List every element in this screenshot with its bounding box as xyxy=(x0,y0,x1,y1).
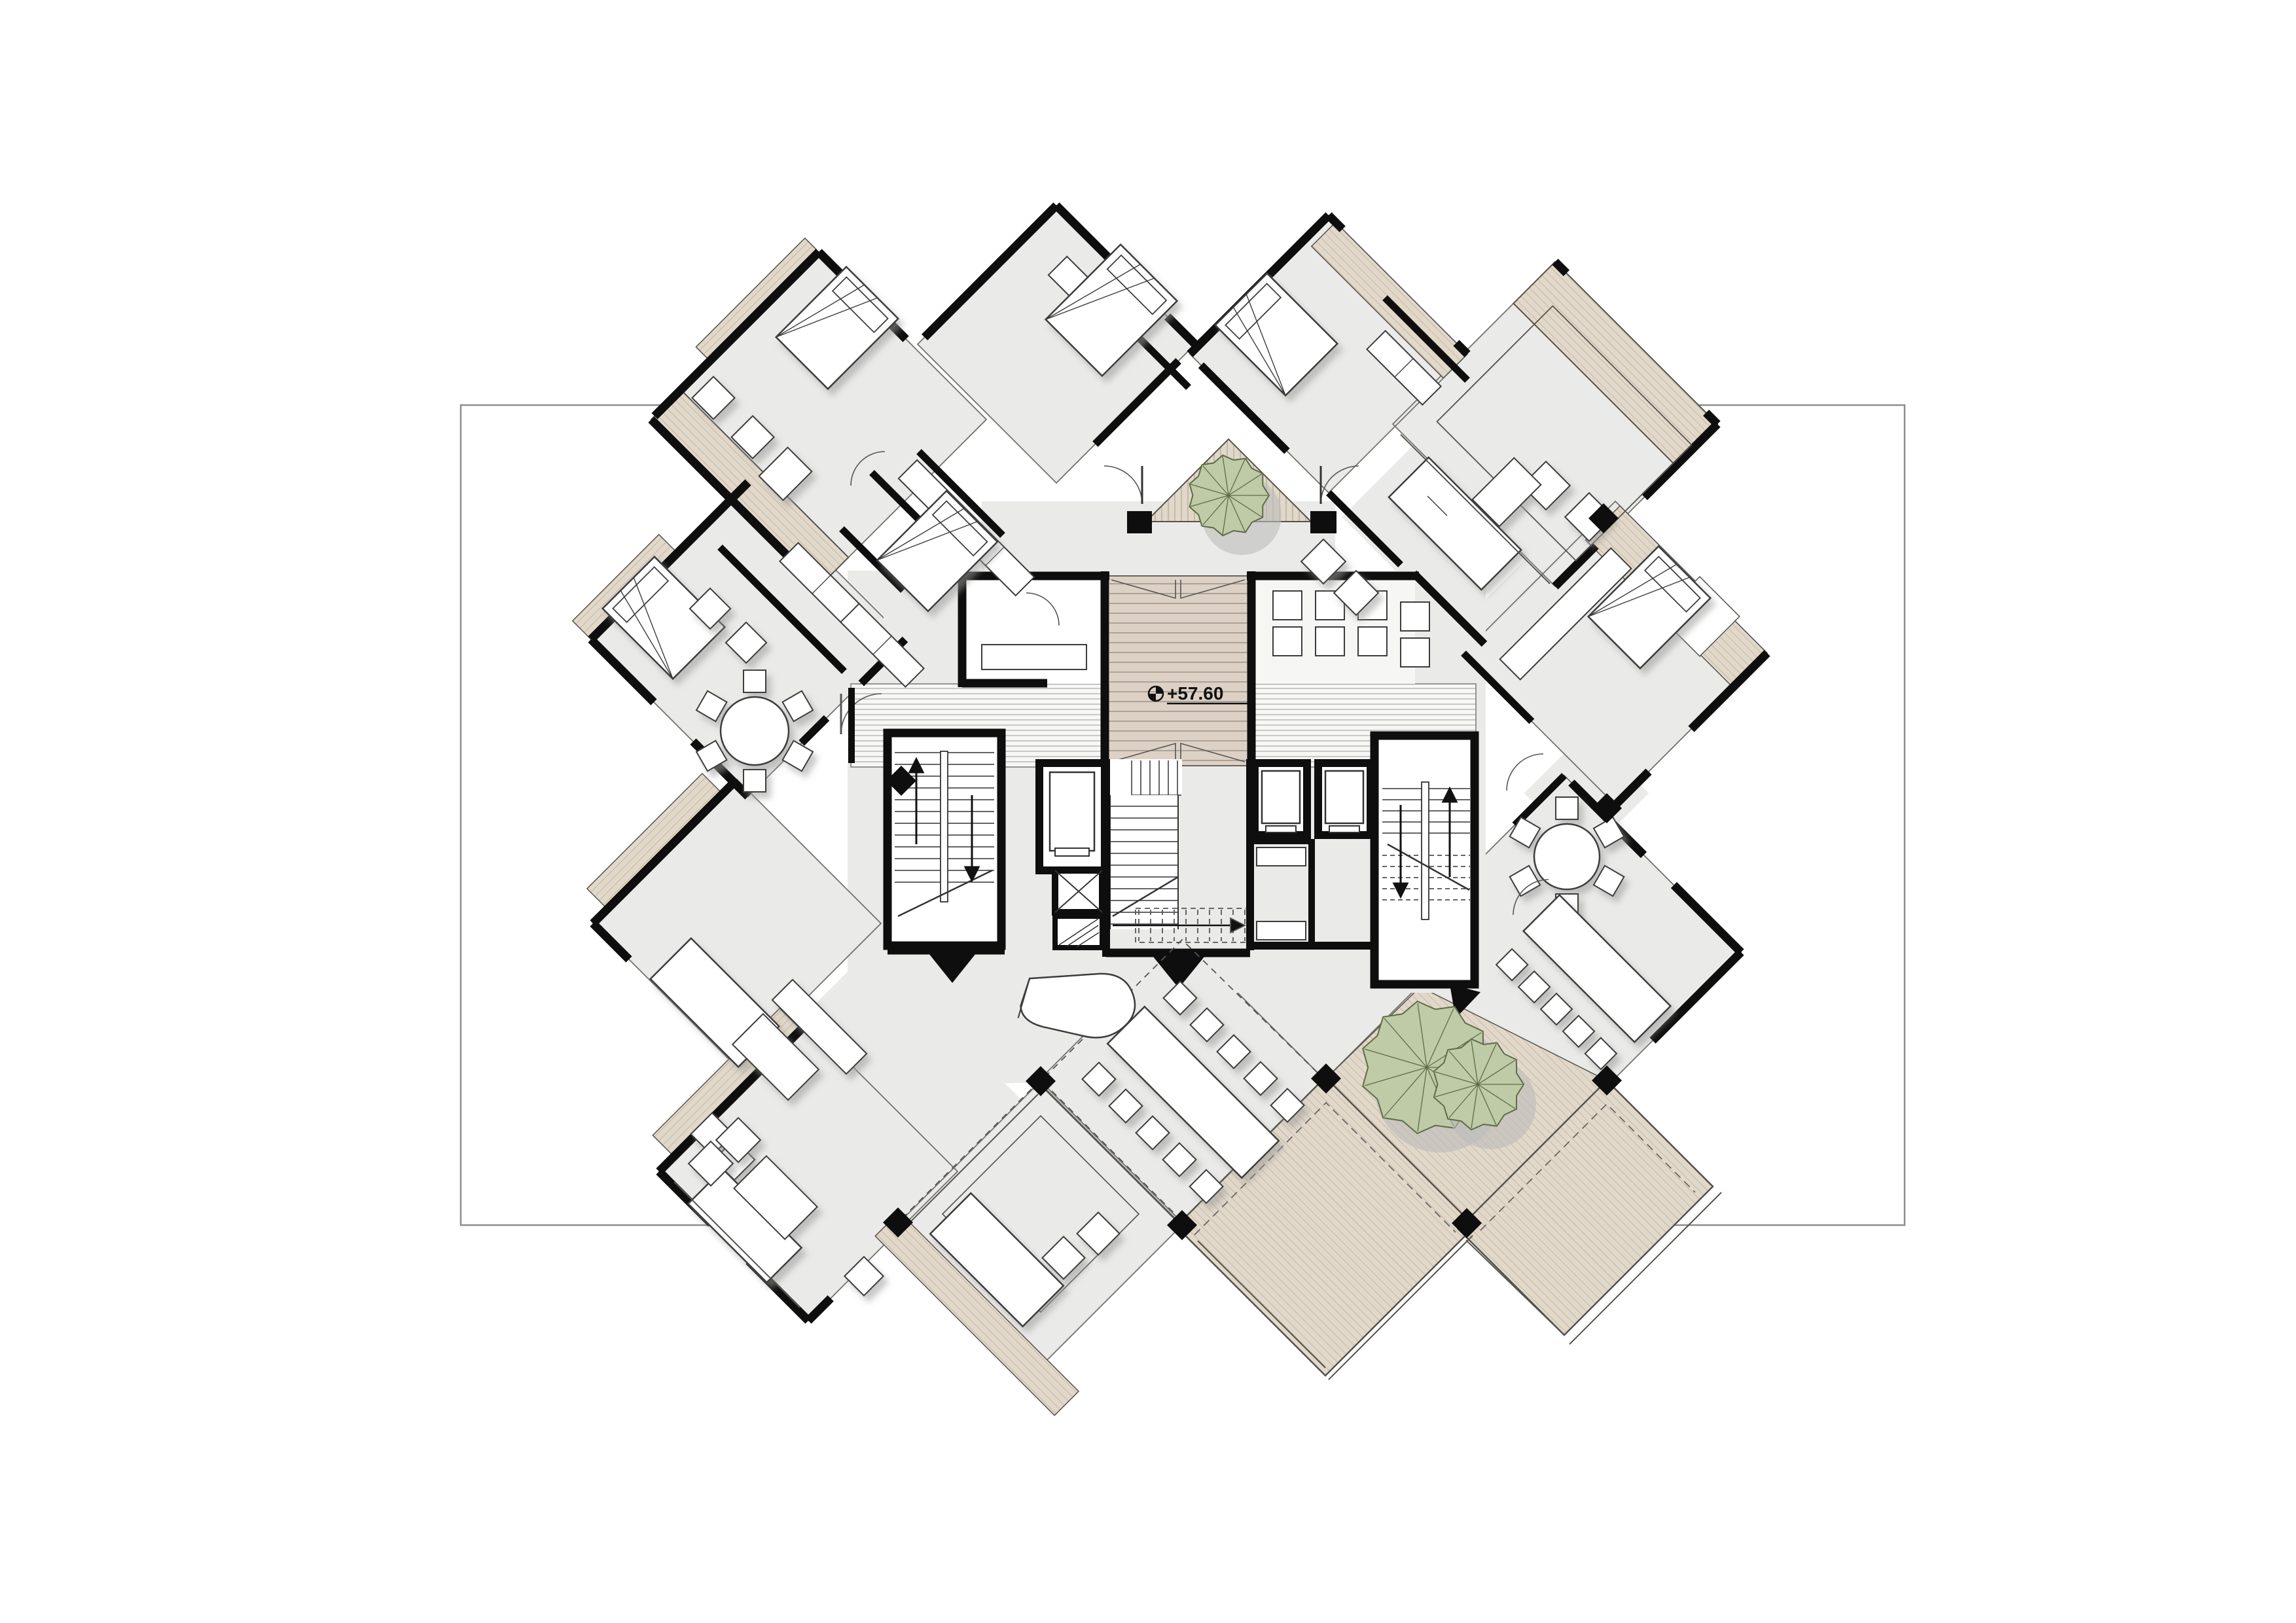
svg-text:+57.60: +57.60 xyxy=(1167,683,1223,704)
